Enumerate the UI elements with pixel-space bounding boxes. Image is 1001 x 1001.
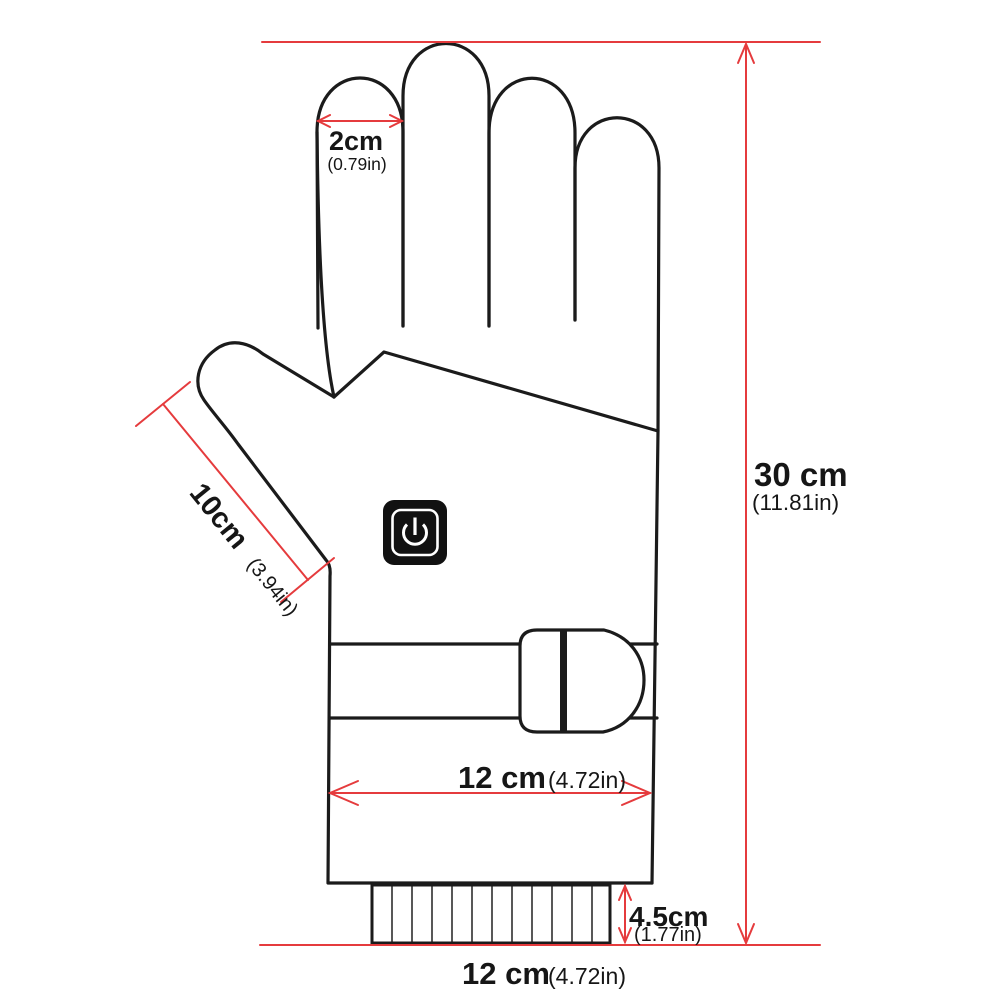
- cuff-height-inches: (1.77in): [634, 924, 702, 946]
- thumb-length-inches: (3.94in): [242, 554, 302, 621]
- dimension-labels: 2cm (0.79in) 10cm (3.94in) 30 cm (11.81i…: [183, 126, 848, 991]
- thumb-length-label: 10cm (3.94in): [183, 477, 308, 621]
- ring-finger-outline: [489, 78, 575, 326]
- strap-buckle-bar: [560, 630, 567, 732]
- thumb-and-palm-outline: [198, 343, 652, 883]
- finger-width-inches: (0.79in): [327, 154, 386, 174]
- knuckle-seam-line: [334, 352, 658, 431]
- palm-width-inches: (4.72in): [548, 767, 626, 793]
- finger-width-value: 2cm: [329, 126, 383, 156]
- cuff-border: [372, 885, 610, 943]
- overall-width-inches: (4.72in): [548, 963, 626, 989]
- glove-length-value: 30 cm: [754, 456, 848, 493]
- overall-width-value: 12 cm: [462, 956, 550, 991]
- glove-dimension-diagram: 2cm (0.79in) 10cm (3.94in) 30 cm (11.81i…: [0, 0, 1001, 1001]
- glove-outline: [198, 44, 659, 884]
- power-button-icon: [383, 500, 447, 565]
- dimension-lines: [136, 42, 820, 945]
- thumb-length-line: [136, 382, 334, 602]
- diagram-canvas: 2cm (0.79in) 10cm (3.94in) 30 cm (11.81i…: [0, 0, 1001, 1001]
- cuff-ribs: [392, 886, 592, 942]
- glove-length-inches: (11.81in): [752, 490, 839, 515]
- palm-width-value: 12 cm: [458, 760, 546, 795]
- thumb-length-value: 10cm: [183, 477, 255, 555]
- middle-finger-outline: [403, 44, 489, 327]
- strap-buckle: [520, 630, 644, 732]
- ribbed-cuff: [372, 885, 610, 943]
